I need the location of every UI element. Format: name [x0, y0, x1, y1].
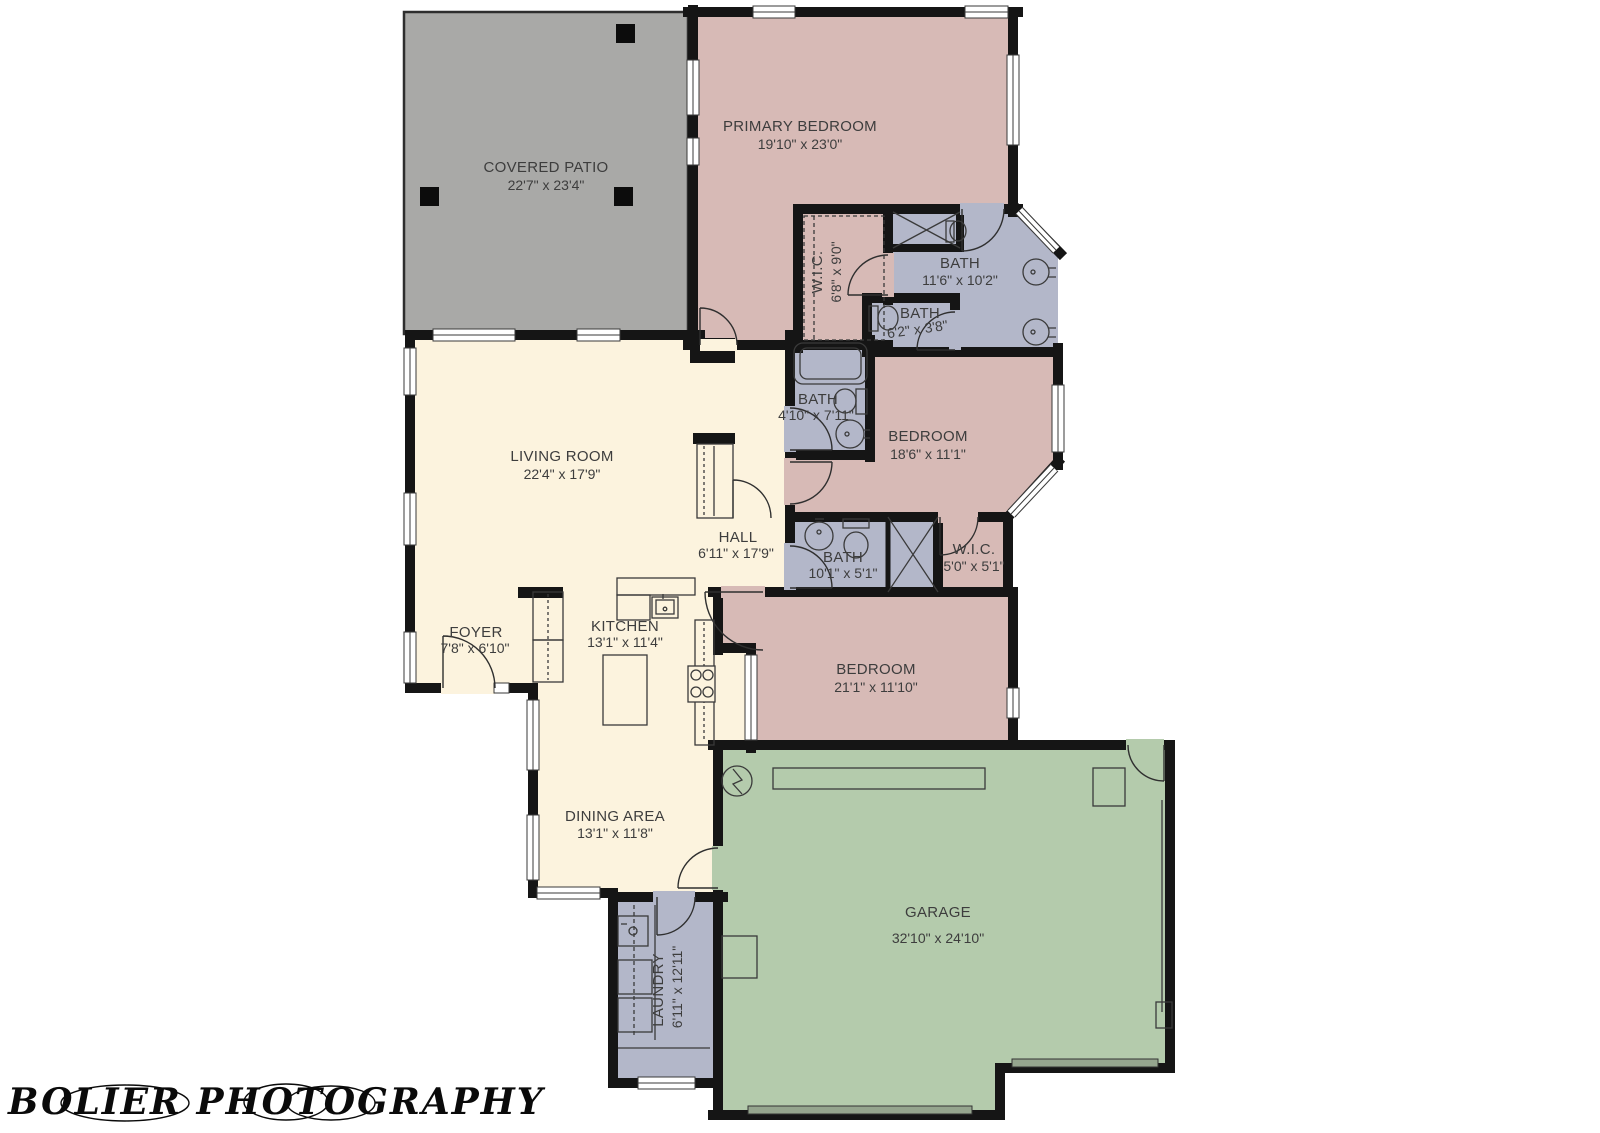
dims-wic-small: 5'0" x 5'1"	[943, 558, 1004, 574]
dims-living: 22'4" x 17'9"	[524, 466, 601, 482]
dims-bath-hall: 4'10" x 7'11"	[778, 407, 854, 423]
dims-laundry: 6'11" x 12'11"	[669, 946, 685, 1029]
floorplan-drawing: COVERED PATIO 22'7" x 23'4" PRIMARY BEDR…	[0, 0, 1600, 1133]
label-primary-bedroom: PRIMARY BEDROOM	[723, 118, 877, 135]
dims-garage: 32'10" x 24'10"	[892, 930, 984, 946]
dims-covered-patio: 22'7" x 23'4"	[508, 177, 585, 193]
dims-dining: 13'1" x 11'8"	[577, 825, 653, 841]
gap-garage-interior	[712, 846, 724, 890]
label-bath-hall: BATH	[798, 391, 838, 408]
label-bath-shared: BATH	[823, 549, 863, 566]
gap-foyer	[441, 682, 495, 694]
gap-bath-small	[949, 310, 961, 350]
label-kitchen: KITCHEN	[591, 618, 659, 635]
watermark-text: BOLIER PHOTOGRAPHY	[7, 1081, 546, 1123]
gap-bath-primary	[960, 203, 1004, 215]
wall-stub-hall-closet	[693, 433, 735, 444]
label-living: LIVING ROOM	[510, 448, 613, 465]
label-dining: DINING AREA	[565, 808, 665, 825]
gap-laundry	[653, 891, 695, 903]
gap-bedroom-mid	[784, 458, 796, 505]
label-garage: GARAGE	[905, 904, 971, 921]
patio-post	[420, 187, 439, 206]
garage-door	[1012, 1059, 1158, 1067]
stove-icon	[688, 666, 715, 702]
gap-wic-small	[938, 511, 978, 523]
gap-primary-bedroom	[700, 339, 737, 351]
label-bedroom-front: BEDROOM	[836, 661, 916, 678]
label-foyer: FOYER	[449, 624, 502, 641]
dims-hall: 6'11" x 17'9"	[698, 545, 774, 561]
label-laundry: LAUNDRY	[650, 953, 667, 1027]
label-covered-patio: COVERED PATIO	[483, 159, 608, 176]
gap-bath-shared	[784, 543, 796, 590]
patio-post	[614, 187, 633, 206]
label-wic-small: W.I.C.	[953, 541, 996, 558]
dims-wic-primary: 6'8" x 9'0"	[828, 241, 844, 302]
patio-post	[616, 24, 635, 43]
garage-door	[748, 1106, 972, 1114]
dims-bath-primary: 11'6" x 10'2"	[922, 272, 998, 288]
dims-bedroom-mid: 18'6" x 11'1"	[890, 446, 966, 462]
label-bedroom-mid: BEDROOM	[888, 428, 968, 445]
dims-primary-bedroom: 19'10" x 23'0"	[758, 136, 843, 152]
floorplan-page: COVERED PATIO 22'7" x 23'4" PRIMARY BEDR…	[0, 0, 1600, 1133]
dims-bedroom-front: 21'1" x 11'10"	[834, 679, 918, 695]
dims-foyer: 7'8" x 6'10"	[441, 640, 510, 656]
gap-garage-entry	[1126, 739, 1164, 751]
label-wic-primary: W.I.C.	[809, 251, 826, 294]
watermark: BOLIER PHOTOGRAPHY	[7, 1081, 546, 1123]
dims-kitchen: 13'1" x 11'4"	[587, 634, 663, 650]
entry-sidelight	[494, 683, 509, 693]
label-hall: HALL	[719, 529, 758, 546]
label-bath-primary: BATH	[940, 255, 980, 272]
dims-bath-shared: 10'1" x 5'1"	[809, 565, 878, 581]
